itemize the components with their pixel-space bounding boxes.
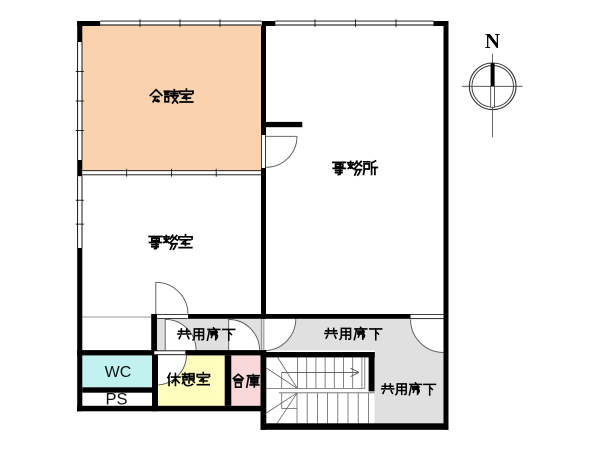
svg-text:PS: PS (105, 391, 127, 409)
svg-text:N: N (485, 29, 500, 53)
svg-text:WC: WC (105, 364, 132, 381)
